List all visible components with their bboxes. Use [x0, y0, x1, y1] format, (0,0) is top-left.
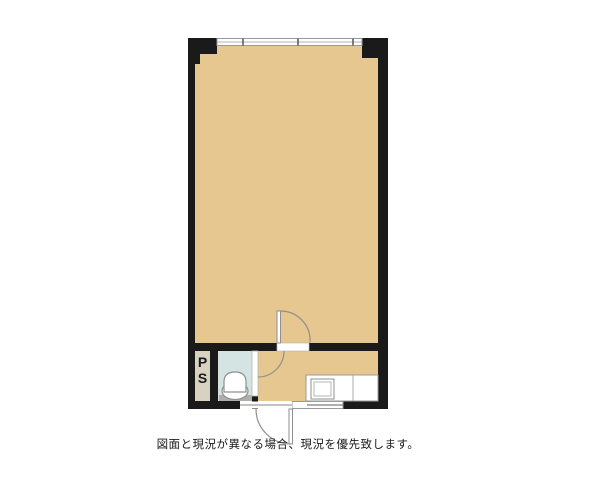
- floor-plan: P S: [0, 0, 600, 480]
- toilet-tank: [224, 372, 246, 392]
- wall-mid-right-segment: [309, 343, 378, 351]
- ps-room-label-line2: S: [198, 370, 207, 386]
- bottom-window: [292, 402, 343, 409]
- disclaimer-caption: 図面と現況が異なる場合、現況を優先致します。: [0, 436, 576, 452]
- wall-right: [378, 38, 388, 409]
- wall-ps-divider: [210, 343, 218, 409]
- toilet-door-opening: [252, 351, 258, 396]
- main-room-floor: [195, 46, 378, 343]
- wall-left: [188, 38, 195, 409]
- main-door-opening: [277, 343, 309, 351]
- main-door-leaf: [277, 311, 281, 343]
- top-window: [217, 39, 362, 46]
- wall-bottom-right-segment: [343, 401, 388, 409]
- floor-plan-page: P S 図面と現況が異なる場合、現況を優先致します。: [0, 0, 600, 480]
- kitchen-counter: [306, 375, 378, 401]
- wall-mid-left-segment: [195, 343, 277, 351]
- toilet-icon: [222, 372, 248, 400]
- kitchen-sink-inner: [314, 382, 331, 396]
- ps-room-label-line1: P: [198, 354, 207, 370]
